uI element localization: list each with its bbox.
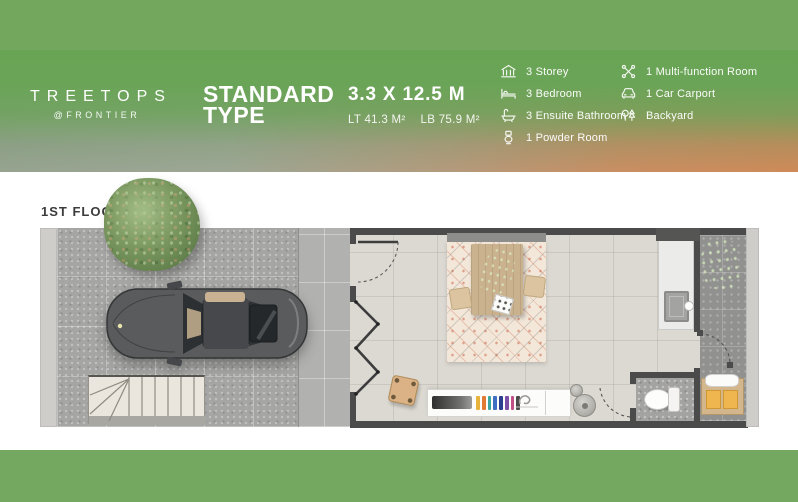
toilet-bowl — [644, 389, 671, 410]
window-band — [447, 233, 546, 242]
chair-right — [523, 275, 546, 298]
sink-faucet — [684, 301, 694, 311]
car-top-view — [103, 277, 311, 370]
brochure-page: TREETOPS @FRONTIER STANDARD TYPE 3.3 X 1… — [0, 0, 798, 502]
kitchen-faucet — [512, 390, 540, 412]
backyard-door — [694, 330, 736, 372]
powder-room-wall — [630, 372, 636, 384]
entrance-door — [350, 236, 412, 294]
staircase — [88, 375, 205, 424]
parked-car — [103, 277, 311, 370]
powder-room-door — [596, 384, 638, 420]
backyard-basin — [705, 374, 739, 387]
folding-door — [348, 298, 384, 398]
counter-divider — [545, 391, 546, 415]
wall-bottom — [350, 421, 748, 428]
pot-large — [573, 394, 596, 417]
chair-left — [448, 286, 472, 310]
powder-room-wall — [630, 372, 700, 378]
wood-stool — [387, 374, 419, 406]
wall-counter-head — [656, 228, 700, 241]
cabinet-door — [723, 390, 738, 409]
right-boundary-strip — [746, 228, 759, 427]
cabinet-door — [706, 390, 721, 409]
toilet-tank — [668, 387, 680, 412]
front-tree — [104, 178, 200, 271]
first-floor-plan: 1ST FLOOR — [0, 0, 798, 502]
left-boundary-strip — [40, 228, 57, 427]
bottom-green-band — [0, 450, 798, 502]
staircase-steps — [89, 377, 206, 426]
stove-cooktop — [432, 396, 472, 409]
wall-right — [694, 228, 700, 332]
